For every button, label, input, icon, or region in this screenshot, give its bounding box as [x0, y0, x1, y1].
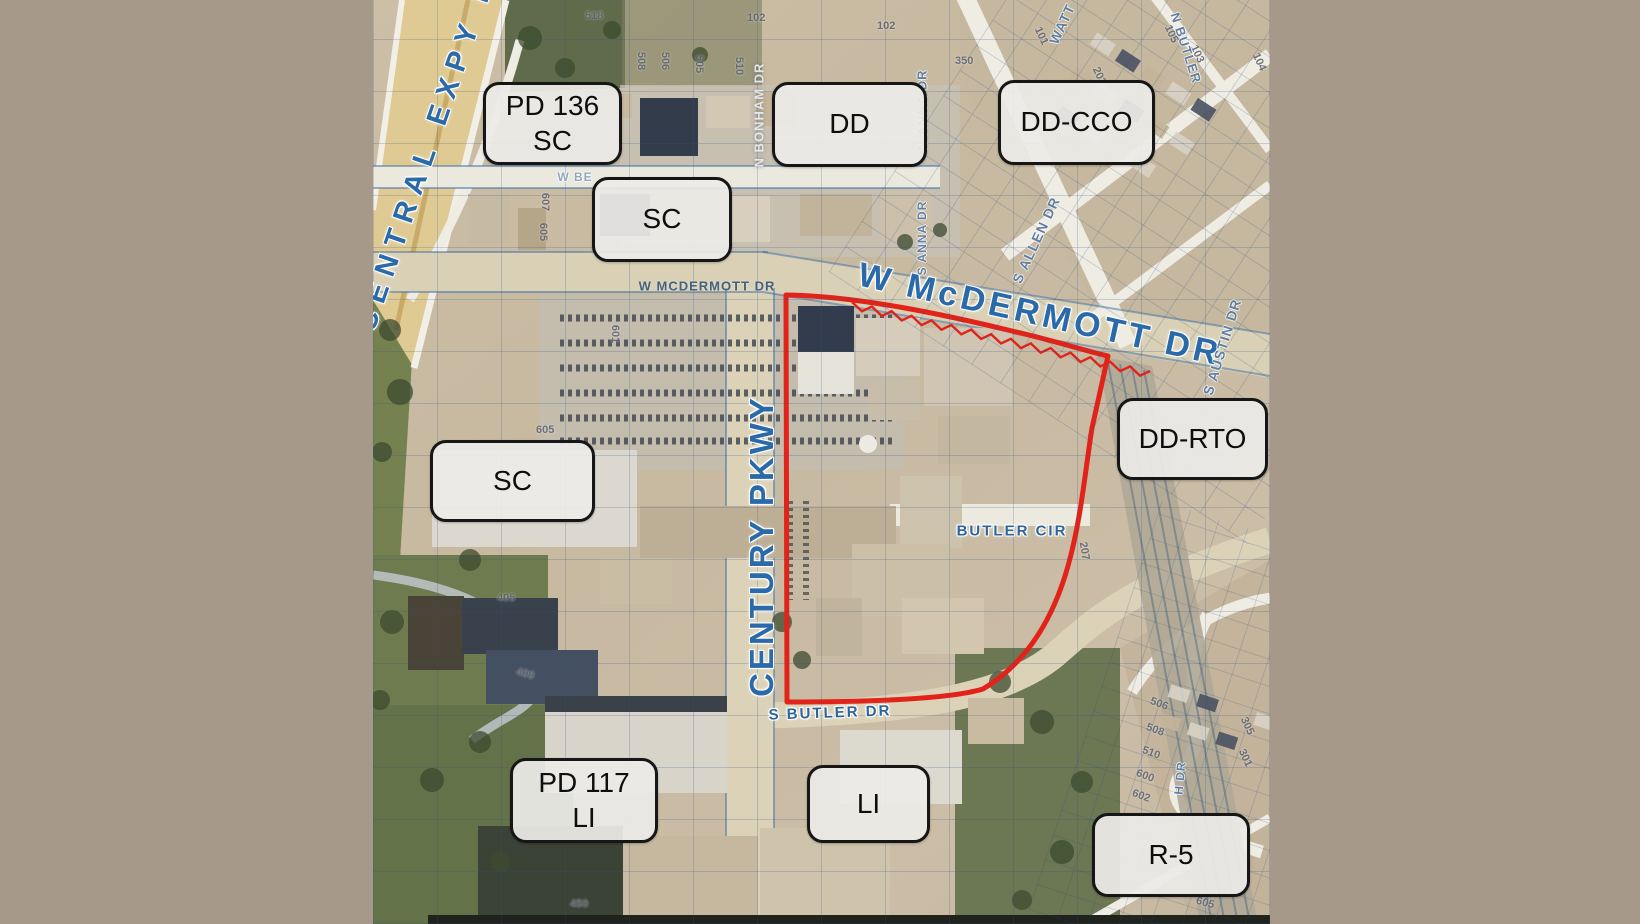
zoning-label-dd-cco: DD-CCO [998, 80, 1155, 165]
zoning-label-line: LI [572, 801, 595, 835]
zoning-label-li: LI [807, 765, 930, 843]
zoning-label-line: SC [643, 202, 682, 236]
zoning-label-sc-north: SC [592, 177, 732, 262]
zoning-label-line: PD 136 [506, 89, 599, 123]
zoning-label-line: SC [493, 464, 532, 498]
zoning-label-line: DD [829, 107, 869, 141]
zoning-label-pd136-sc: PD 136 SC [483, 82, 622, 165]
zoning-label-line: SC [533, 124, 572, 158]
zoning-label-line: PD 117 [538, 766, 629, 800]
zoning-label-r5: R-5 [1092, 813, 1250, 897]
aerial-basemap: 5181021021013501051031042035085065055106… [373, 0, 1270, 924]
zoning-labels-layer: PD 136 SC SC DD DD-CCO SC DD-RTO PD 117 … [373, 0, 1270, 924]
zoning-label-dd: DD [772, 82, 927, 167]
zoning-label-line: DD-CCO [1021, 105, 1133, 139]
zoning-label-sc-west: SC [430, 440, 595, 522]
zoning-label-line: R-5 [1148, 838, 1193, 872]
zoning-map-slide: { "zoning": { "pd136sc_l1": "PD 136", "p… [0, 0, 1640, 924]
zoning-label-dd-rto: DD-RTO [1117, 398, 1268, 480]
aerial-zoning-map: 5181021021013501051031042035085065055106… [373, 0, 1270, 924]
zoning-label-line: DD-RTO [1139, 422, 1247, 456]
zoning-label-pd117-li: PD 117 LI [510, 758, 658, 843]
zoning-label-line: LI [857, 787, 880, 821]
